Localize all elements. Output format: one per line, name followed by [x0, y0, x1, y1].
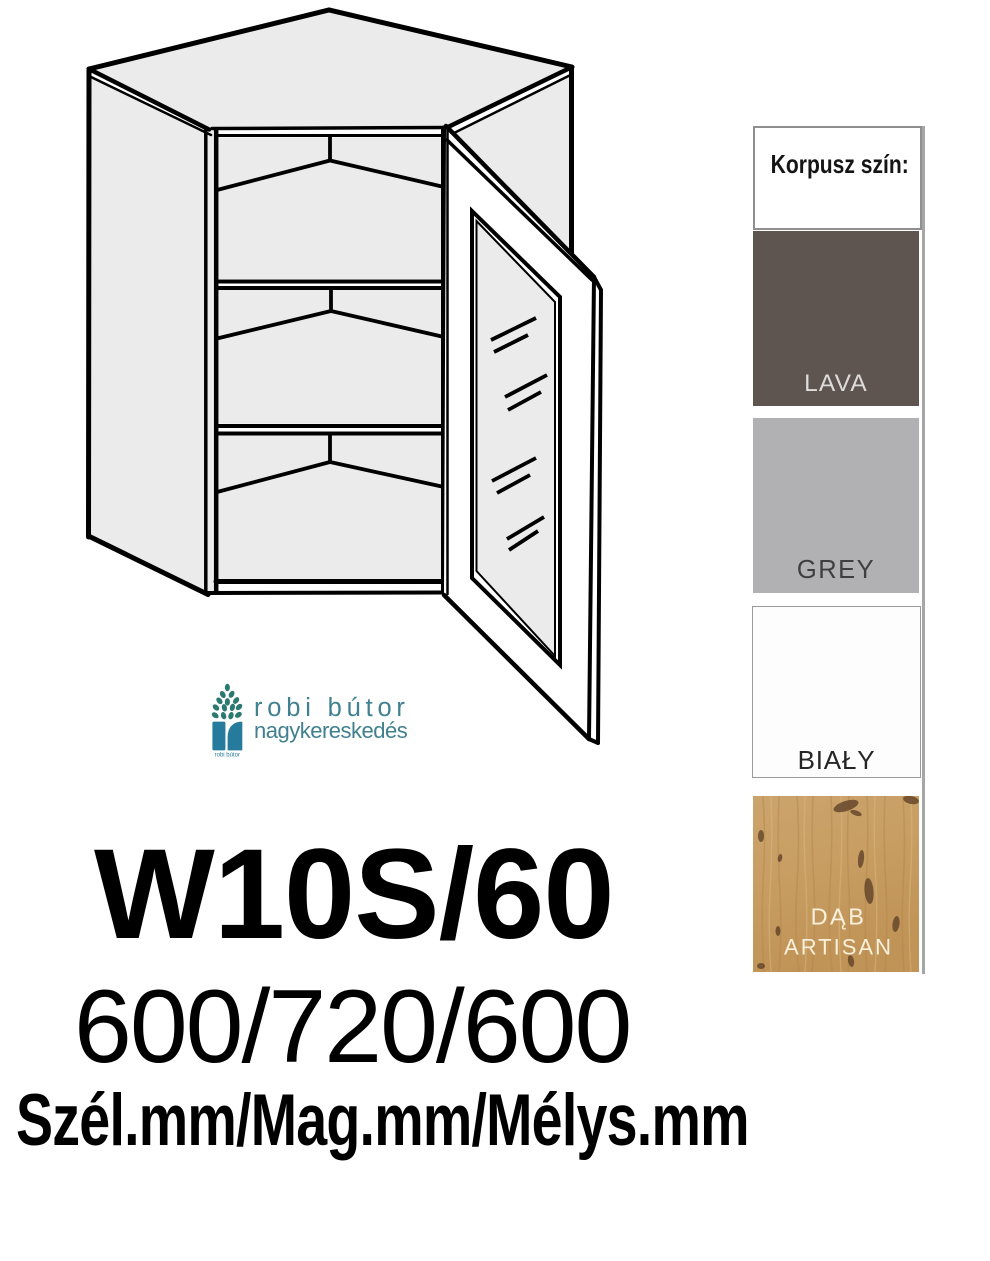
svg-text:DĄB: DĄB [811, 904, 867, 930]
svg-text:ARTISAN: ARTISAN [784, 935, 893, 960]
svg-text:robi bútor: robi bútor [215, 753, 240, 759]
